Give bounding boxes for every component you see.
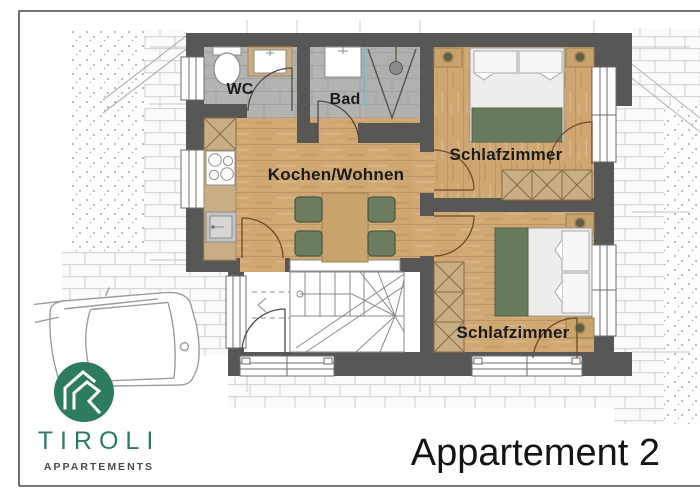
window-symbol-right-2 — [592, 245, 616, 336]
double-bed-symbol — [495, 228, 592, 316]
wardrobe-symbol — [502, 170, 592, 200]
wardrobe-symbol — [204, 118, 236, 150]
window-symbol-terrace — [472, 356, 582, 376]
window-symbol-left-2 — [181, 150, 204, 208]
floor-plan-page: WC Bad Kochen/Wohnen Schlafzimmer Schlaf… — [0, 0, 700, 500]
floor-plan-drawing — [0, 0, 700, 500]
room-label-schlafzimmer-2: Schlafzimmer — [457, 323, 570, 343]
kitchen-sink-symbol — [206, 212, 236, 242]
page-title: Appartement 2 — [411, 432, 660, 475]
window-symbol-left-1 — [181, 57, 204, 100]
brand-name: TIROLI — [28, 427, 170, 456]
room-label-bad: Bad — [330, 91, 361, 109]
dining-table-symbol — [322, 193, 368, 262]
window-symbol-right-1 — [592, 67, 616, 162]
room-label-schlafzimmer-1: Schlafzimmer — [450, 145, 563, 165]
brand-subtitle: APPARTEMENTS — [28, 461, 170, 473]
room-label-kochen-wohnen: Kochen/Wohnen — [268, 165, 404, 185]
house-in-circle-icon — [52, 360, 116, 424]
window-symbol-entry — [240, 356, 334, 376]
window-symbol-hall — [226, 276, 246, 348]
double-bed-symbol — [470, 48, 564, 142]
room-label-wc: WC — [226, 81, 253, 99]
stove-symbol — [206, 151, 235, 185]
